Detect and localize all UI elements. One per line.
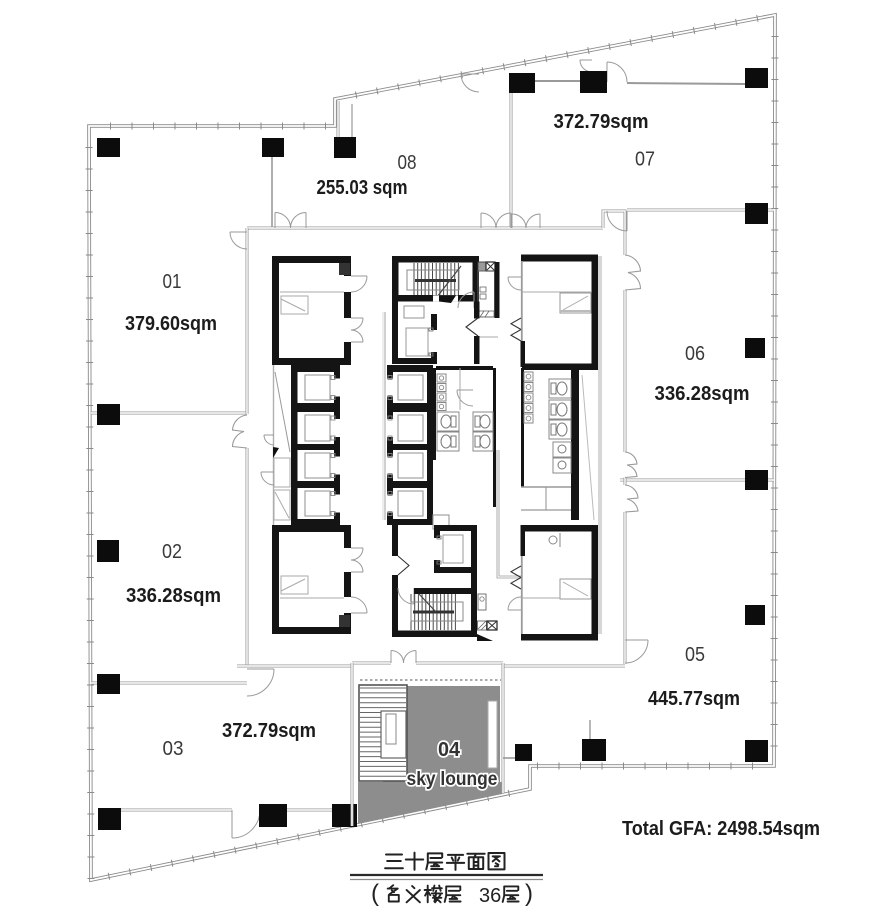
svg-text:07: 07 bbox=[635, 149, 655, 171]
svg-text:): ) bbox=[525, 880, 533, 907]
svg-text:255.03 sqm: 255.03 sqm bbox=[317, 177, 408, 199]
svg-text:36: 36 bbox=[479, 885, 501, 907]
svg-text:445.77sqm: 445.77sqm bbox=[648, 688, 740, 710]
svg-text:372.79sqm: 372.79sqm bbox=[222, 720, 316, 742]
svg-text:04: 04 bbox=[438, 739, 461, 761]
svg-text:(: ( bbox=[371, 880, 379, 907]
svg-text:02: 02 bbox=[162, 541, 182, 563]
svg-text:336.28sqm: 336.28sqm bbox=[126, 585, 221, 607]
svg-text:08: 08 bbox=[398, 152, 417, 174]
svg-text:372.79sqm: 372.79sqm bbox=[554, 111, 649, 133]
svg-text:06: 06 bbox=[685, 343, 705, 365]
svg-text:379.60sqm: 379.60sqm bbox=[125, 313, 217, 335]
svg-text:Total GFA: 2498.54sqm: Total GFA: 2498.54sqm bbox=[622, 817, 820, 840]
svg-text:05: 05 bbox=[685, 644, 705, 666]
svg-text:01: 01 bbox=[163, 271, 182, 293]
svg-text:sky lounge: sky lounge bbox=[407, 769, 498, 790]
svg-text:336.28sqm: 336.28sqm bbox=[655, 383, 750, 405]
svg-text:03: 03 bbox=[163, 738, 184, 760]
